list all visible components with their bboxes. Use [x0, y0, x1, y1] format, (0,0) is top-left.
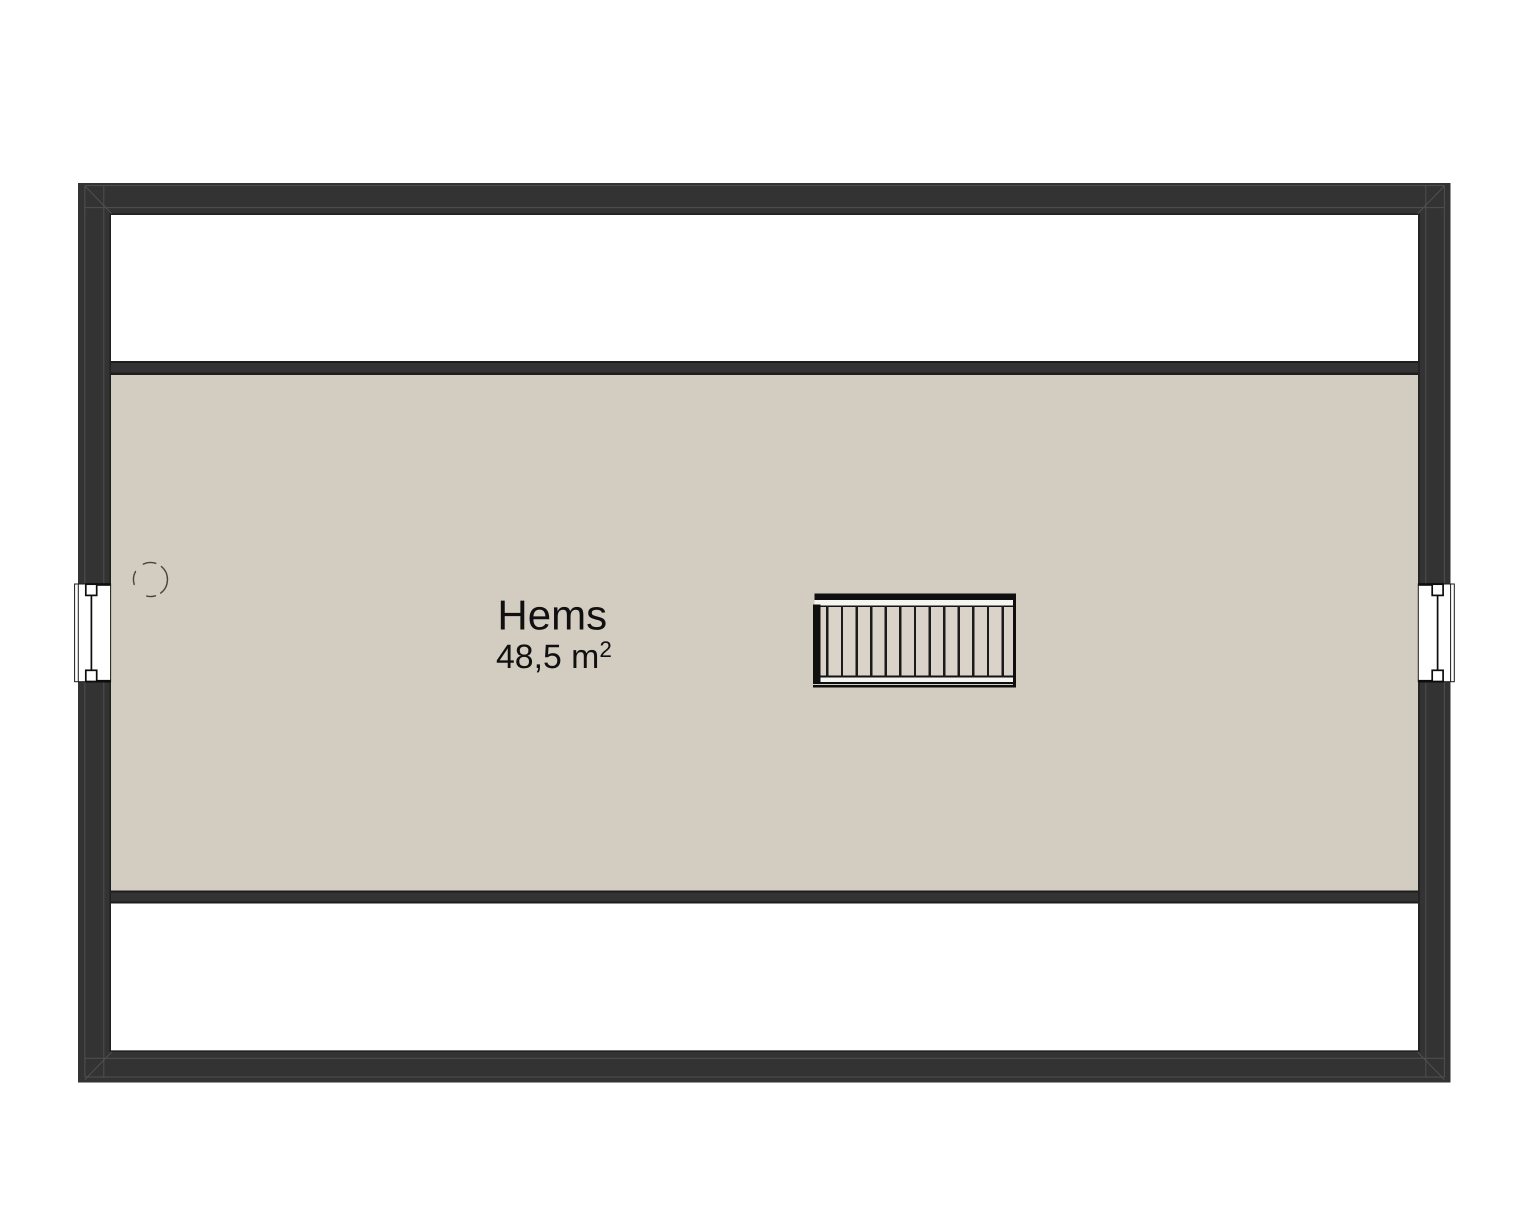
svg-text:48,5 m2: 48,5 m2	[496, 637, 612, 676]
svg-text:Hems: Hems	[497, 592, 607, 639]
